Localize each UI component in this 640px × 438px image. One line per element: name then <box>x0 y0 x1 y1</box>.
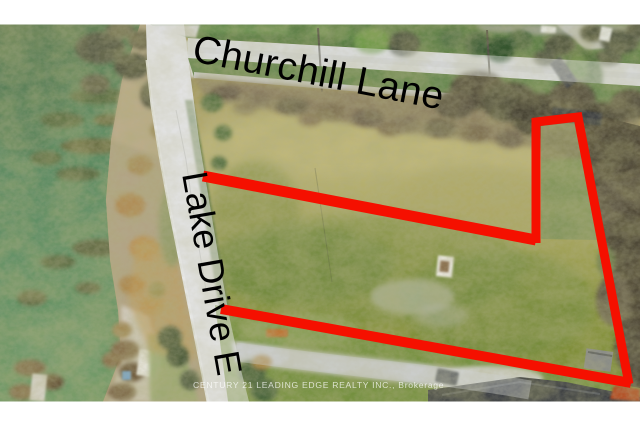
svg-text:CENTURY 21 LEADING EDGE REALTY: CENTURY 21 LEADING EDGE REALTY INC., Bro… <box>193 380 444 390</box>
